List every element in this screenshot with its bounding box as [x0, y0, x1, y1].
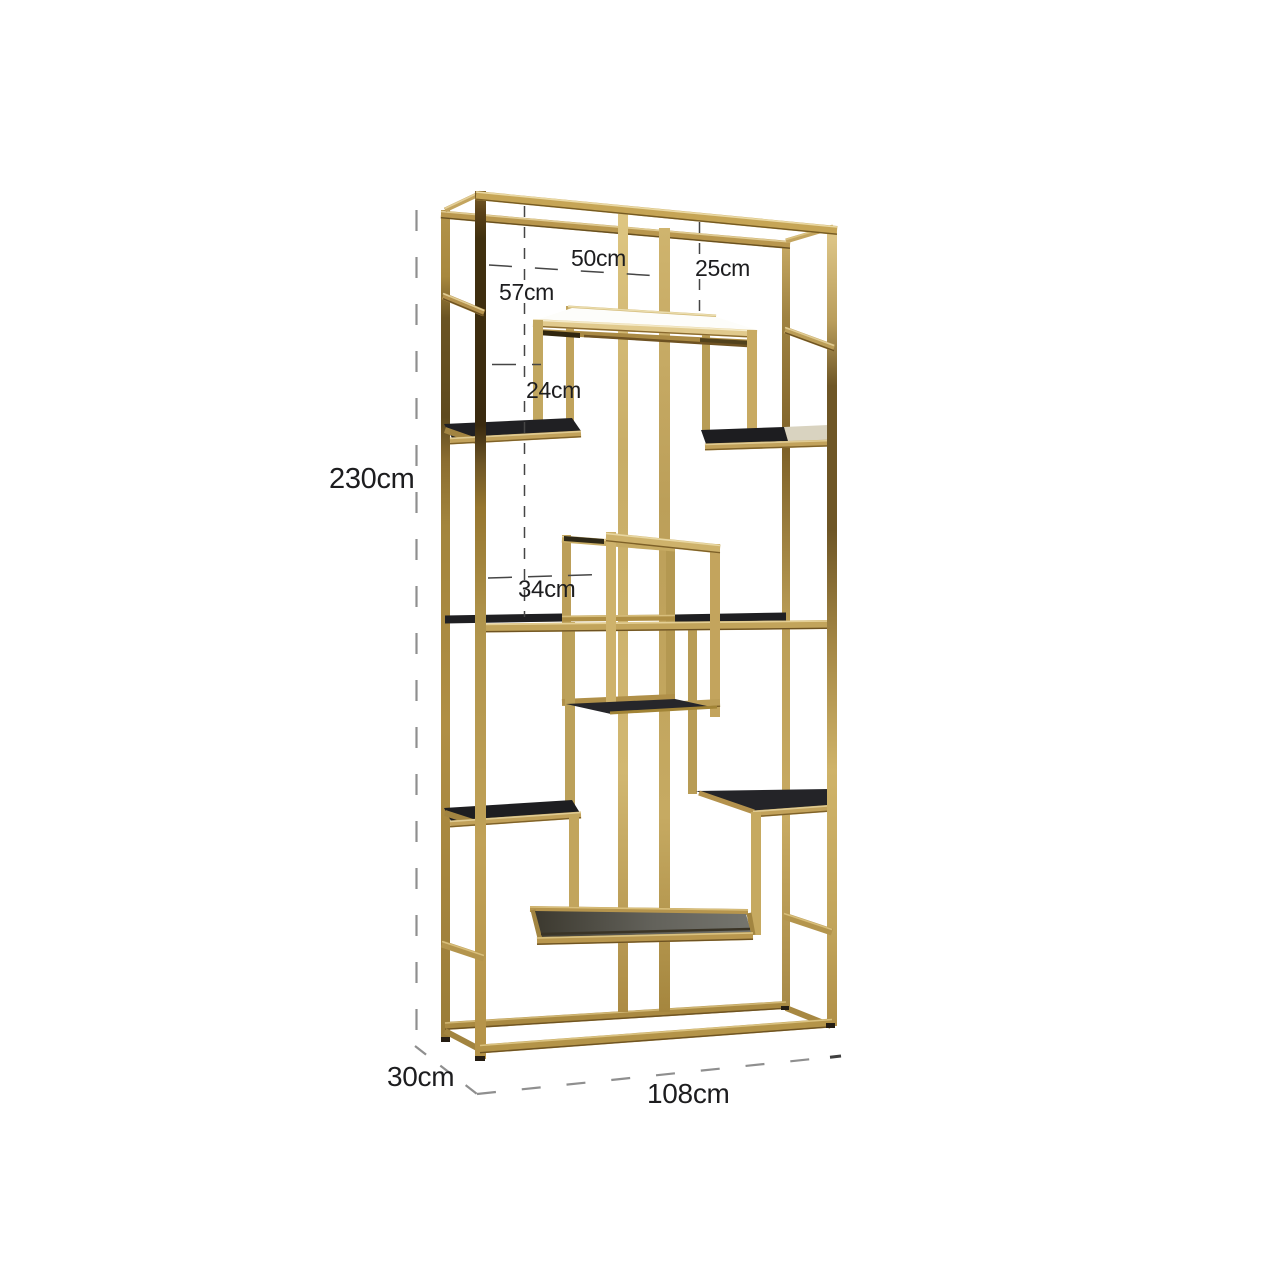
svg-text:34cm: 34cm [518, 576, 576, 603]
svg-text:30cm: 30cm [387, 1061, 454, 1092]
svg-text:50cm: 50cm [571, 245, 626, 271]
svg-text:24cm: 24cm [526, 377, 581, 403]
svg-text:108cm: 108cm [647, 1078, 730, 1109]
svg-text:230cm: 230cm [329, 463, 415, 495]
svg-text:25cm: 25cm [695, 255, 750, 281]
svg-text:57cm: 57cm [499, 279, 554, 305]
